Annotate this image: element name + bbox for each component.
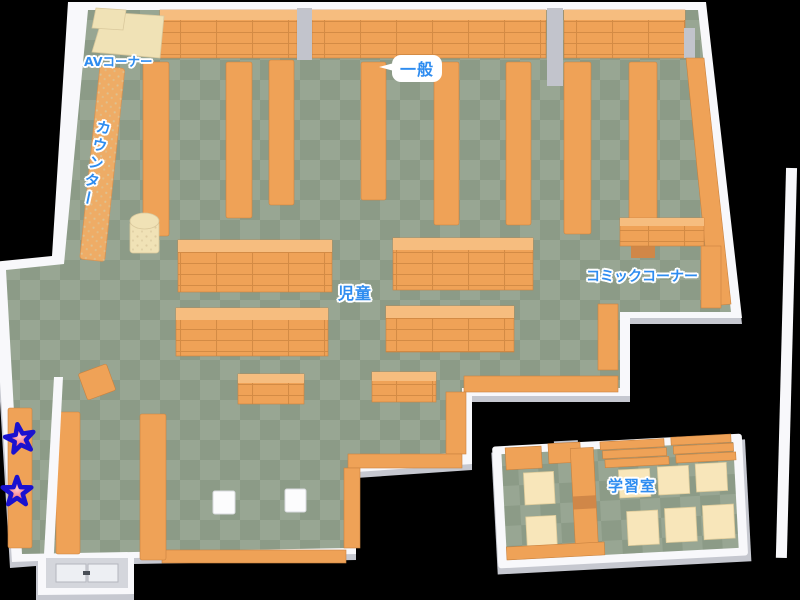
study-room [491, 431, 751, 574]
study-table [702, 504, 735, 540]
outer-wall-segment [776, 168, 797, 558]
table-white [285, 489, 306, 512]
study-table [665, 507, 698, 543]
bookshelf [344, 468, 360, 548]
cylinder-top [130, 213, 159, 229]
study-table [627, 510, 660, 546]
area-label-children: 児童 [338, 286, 372, 303]
bookshelf [140, 414, 166, 560]
bookshelf [143, 62, 169, 236]
bookshelf-top [178, 240, 332, 252]
bookshelf [361, 62, 386, 200]
area-label-general: 一般 [392, 55, 442, 82]
door-handle [83, 571, 90, 575]
bookshelf [269, 60, 294, 205]
bookshelf [464, 376, 618, 392]
bookshelf-grid [372, 381, 436, 402]
table-white [213, 491, 235, 514]
bookshelf [598, 304, 618, 370]
bookshelf [701, 246, 721, 308]
entrance-door [88, 564, 118, 582]
entrance [46, 558, 128, 588]
divider-gap [573, 495, 597, 509]
bookshelf [434, 62, 459, 225]
bookshelf-top [372, 372, 436, 381]
bookshelf-top [238, 374, 304, 383]
study-table [657, 465, 689, 495]
bookshelf [505, 446, 542, 470]
av-shelf [92, 8, 126, 30]
bookshelf-grid [176, 320, 328, 356]
bookshelf [629, 62, 657, 240]
bookshelf-top [160, 10, 297, 20]
bookshelf-grid [312, 20, 546, 58]
bookshelf-grid [386, 318, 514, 352]
display-cylinder [130, 213, 159, 253]
bookshelf-top [393, 238, 533, 250]
outside-wall [776, 168, 797, 558]
bookshelf-top [564, 10, 685, 20]
area-label-av-corner: AVコーナー [84, 55, 153, 68]
pillar [684, 28, 695, 58]
study-table [523, 471, 555, 505]
floor-map-graphic [0, 0, 800, 600]
pillar [297, 8, 312, 60]
library-floor-map: AVコーナー 一般 カウンター 児童 コミックコーナー 学習室 [0, 0, 800, 600]
bookshelf-grid [564, 20, 685, 58]
bookshelf-grid [178, 252, 332, 292]
study-table [695, 462, 727, 492]
pillar [547, 8, 563, 86]
bookshelf [162, 550, 346, 563]
bookshelf-top [386, 306, 514, 318]
bookshelf [348, 454, 462, 468]
bookshelf-grid [393, 250, 533, 290]
bookshelf [564, 62, 591, 234]
area-label-comic-corner: コミックコーナー [586, 270, 698, 285]
bookshelf-grid [238, 383, 304, 404]
area-label-study-room: 学習室 [608, 479, 656, 495]
bookshelf [446, 392, 466, 454]
bookshelf-top [620, 218, 704, 226]
bookshelf-top [176, 308, 328, 320]
entrance-door [56, 564, 86, 582]
bookshelf-top [312, 10, 546, 20]
bookshelf [506, 62, 531, 225]
bookshelf [226, 62, 252, 218]
bookshelf-grid [160, 20, 297, 58]
bookshelf-grid [620, 226, 704, 246]
